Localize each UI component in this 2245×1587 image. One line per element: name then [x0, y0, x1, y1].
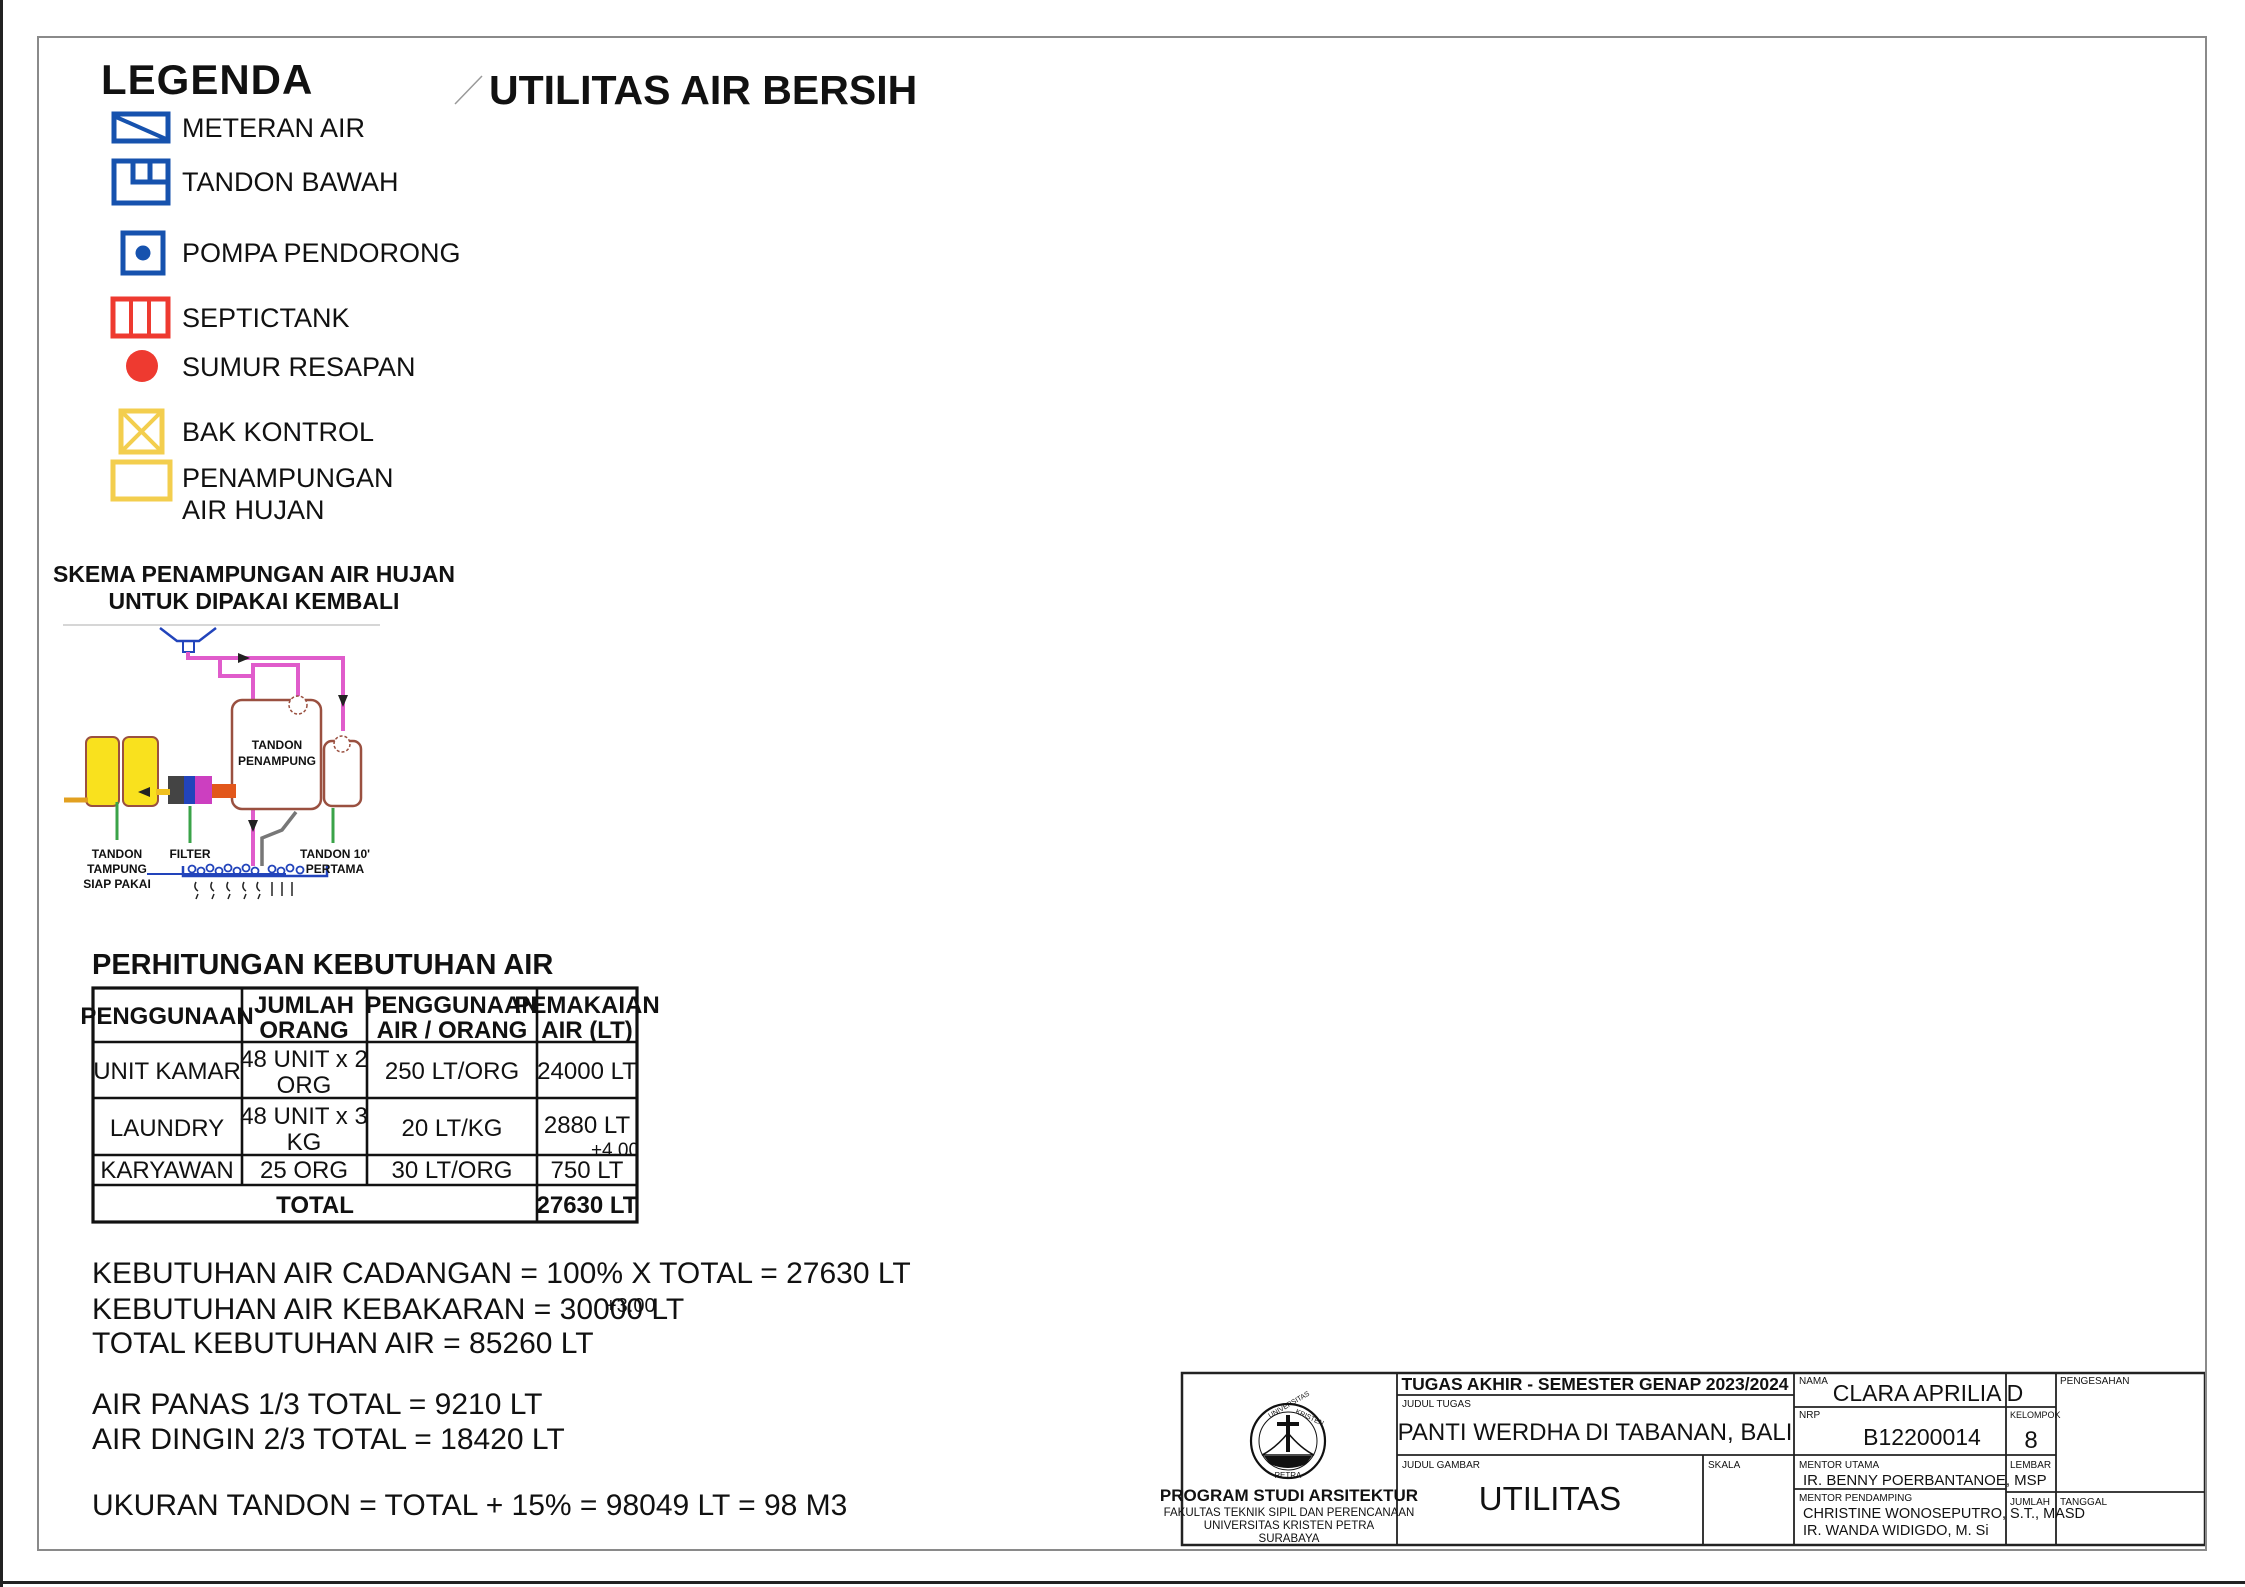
- svg-text:PENGESAHAN: PENGESAHAN: [2060, 1376, 2129, 1387]
- svg-text:UTILITAS AIR BERSIH: UTILITAS AIR BERSIH: [489, 67, 917, 113]
- svg-text:TANDON BAWAH: TANDON BAWAH: [182, 167, 399, 197]
- svg-text:METERAN AIR: METERAN AIR: [182, 113, 365, 143]
- svg-text:IR. BENNY POERBANTANOE, MSP: IR. BENNY POERBANTANOE, MSP: [1803, 1472, 2047, 1489]
- svg-text:CHRISTINE WONOSEPUTRO, S.T., M: CHRISTINE WONOSEPUTRO, S.T., MASD: [1803, 1506, 2085, 1522]
- svg-text:PETRA: PETRA: [1275, 1471, 1302, 1480]
- svg-text:SEPTICTANK: SEPTICTANK: [182, 303, 350, 333]
- svg-text:NRP: NRP: [1799, 1410, 1820, 1421]
- svg-text:UKURAN TANDON = TOTAL + 15% =: UKURAN TANDON = TOTAL + 15% = 98049 LT =…: [92, 1489, 847, 1522]
- svg-text:8: 8: [2024, 1427, 2037, 1454]
- svg-text:24000 LT: 24000 LT: [537, 1058, 637, 1085]
- svg-text:20 LT/KG: 20 LT/KG: [402, 1115, 503, 1142]
- svg-text:SUMUR RESAPAN: SUMUR RESAPAN: [182, 352, 416, 382]
- svg-text:KEBUTUHAN AIR CADANGAN = 100%: KEBUTUHAN AIR CADANGAN = 100% X TOTAL = …: [92, 1257, 911, 1290]
- svg-text:25 ORG: 25 ORG: [260, 1157, 348, 1184]
- svg-text:ORANG: ORANG: [259, 1017, 348, 1044]
- svg-text:JUDUL TUGAS: JUDUL TUGAS: [1402, 1399, 1471, 1410]
- svg-text:CLARA APRILIA D: CLARA APRILIA D: [1833, 1380, 2023, 1406]
- svg-text:UNIVERSITAS KRISTEN PETRA: UNIVERSITAS KRISTEN PETRA: [1204, 1520, 1375, 1532]
- svg-text:PEMAKAIAN: PEMAKAIAN: [514, 992, 659, 1019]
- svg-text:48 UNIT x 2: 48 UNIT x 2: [240, 1046, 368, 1073]
- svg-text:AIR HUJAN: AIR HUJAN: [182, 495, 325, 525]
- svg-text:2880 LT: 2880 LT: [544, 1112, 631, 1139]
- svg-text:UNIT KAMAR: UNIT KAMAR: [93, 1058, 241, 1085]
- svg-text:NAMA: NAMA: [1799, 1376, 1828, 1387]
- svg-text:KELOMPOK: KELOMPOK: [2010, 1410, 2061, 1420]
- svg-text:TANGGAL: TANGGAL: [2060, 1497, 2107, 1508]
- svg-text:TUGAS AKHIR - SEMESTER GENAP 2: TUGAS AKHIR - SEMESTER GENAP 2023/2024: [1401, 1374, 1788, 1394]
- svg-text:SIAP PAKAI: SIAP PAKAI: [83, 877, 151, 891]
- svg-text:+3.00: +3.00: [605, 1295, 656, 1317]
- svg-text:LAUNDRY: LAUNDRY: [110, 1115, 224, 1142]
- svg-text:AIR (LT): AIR (LT): [541, 1017, 633, 1044]
- svg-text:FILTER: FILTER: [169, 847, 210, 861]
- svg-text:PANTI WERDHA DI TABANAN, BALI: PANTI WERDHA DI TABANAN, BALI: [1398, 1419, 1793, 1446]
- svg-text:JUMLAH: JUMLAH: [2010, 1497, 2050, 1508]
- svg-text:AIR PANAS 1/3 TOTAL = 9210 LT: AIR PANAS 1/3 TOTAL = 9210 LT: [92, 1388, 543, 1421]
- svg-text:KG: KG: [287, 1129, 322, 1156]
- svg-text:TOTAL: TOTAL: [276, 1192, 354, 1219]
- svg-text:PERHITUNGAN KEBUTUHAN AIR: PERHITUNGAN KEBUTUHAN AIR: [92, 949, 553, 981]
- svg-text:PENGGUNAAN: PENGGUNAAN: [365, 992, 538, 1019]
- svg-text:FAKULTAS TEKNIK SIPIL DAN PERE: FAKULTAS TEKNIK SIPIL DAN PERENCANAAN: [1164, 1507, 1415, 1519]
- svg-text:ORG: ORG: [277, 1072, 332, 1099]
- svg-text:JUDUL GAMBAR: JUDUL GAMBAR: [1402, 1460, 1480, 1471]
- svg-text:PENAMPUNG: PENAMPUNG: [238, 754, 316, 768]
- svg-text:MENTOR PENDAMPING: MENTOR PENDAMPING: [1799, 1493, 1912, 1504]
- svg-text:SKALA: SKALA: [1708, 1460, 1741, 1471]
- svg-text:JUMLAH: JUMLAH: [254, 992, 354, 1019]
- svg-text:PENAMPUNGAN: PENAMPUNGAN: [182, 463, 394, 493]
- svg-text:UTILITAS: UTILITAS: [1479, 1480, 1621, 1517]
- svg-text:KARYAWAN: KARYAWAN: [100, 1157, 233, 1184]
- svg-text:IR. WANDA WIDIGDO, M. Si: IR. WANDA WIDIGDO, M. Si: [1803, 1523, 1989, 1539]
- svg-text:PERTAMA: PERTAMA: [306, 862, 365, 876]
- svg-text:B12200014: B12200014: [1863, 1424, 1981, 1450]
- svg-text:TAMPUNG: TAMPUNG: [87, 862, 147, 876]
- svg-text:POMPA PENDORONG: POMPA PENDORONG: [182, 238, 461, 268]
- svg-text:TANDON: TANDON: [252, 738, 302, 752]
- svg-text:BAK KONTROL: BAK KONTROL: [182, 417, 374, 447]
- svg-text:SKEMA PENAMPUNGAN AIR HUJAN: SKEMA PENAMPUNGAN AIR HUJAN: [53, 561, 455, 587]
- svg-text:TANDON 10': TANDON 10': [300, 847, 370, 861]
- svg-text:LEMBAR: LEMBAR: [2010, 1460, 2051, 1471]
- svg-text:750 LT: 750 LT: [551, 1157, 624, 1184]
- svg-text:27630 LT: 27630 LT: [537, 1192, 638, 1219]
- svg-text:AIR / ORANG: AIR / ORANG: [377, 1017, 528, 1044]
- svg-text:MENTOR UTAMA: MENTOR UTAMA: [1799, 1460, 1880, 1471]
- svg-text:TANDON: TANDON: [92, 847, 142, 861]
- svg-text:PROGRAM STUDI ARSITEKTUR: PROGRAM STUDI ARSITEKTUR: [1160, 1486, 1418, 1505]
- svg-text:48 UNIT x 3: 48 UNIT x 3: [240, 1103, 368, 1130]
- svg-text:LEGENDA: LEGENDA: [101, 56, 313, 103]
- svg-text:KEBUTUHAN AIR KEBAKARAN = 3000: KEBUTUHAN AIR KEBAKARAN = 30000 LT: [92, 1293, 684, 1326]
- svg-text:SURABAYA: SURABAYA: [1259, 1533, 1320, 1545]
- svg-text:TOTAL KEBUTUHAN AIR = 85260 LT: TOTAL KEBUTUHAN AIR = 85260 LT: [92, 1327, 594, 1360]
- svg-text:250 LT/ORG: 250 LT/ORG: [385, 1058, 519, 1085]
- svg-text:AIR DINGIN 2/3 TOTAL = 18420 L: AIR DINGIN 2/3 TOTAL = 18420 LT: [92, 1423, 565, 1456]
- svg-text:30 LT/ORG: 30 LT/ORG: [392, 1157, 513, 1184]
- svg-text:UNTUK DIPAKAI KEMBALI: UNTUK DIPAKAI KEMBALI: [109, 588, 400, 614]
- svg-text:PENGGUNAAN: PENGGUNAAN: [80, 1003, 253, 1030]
